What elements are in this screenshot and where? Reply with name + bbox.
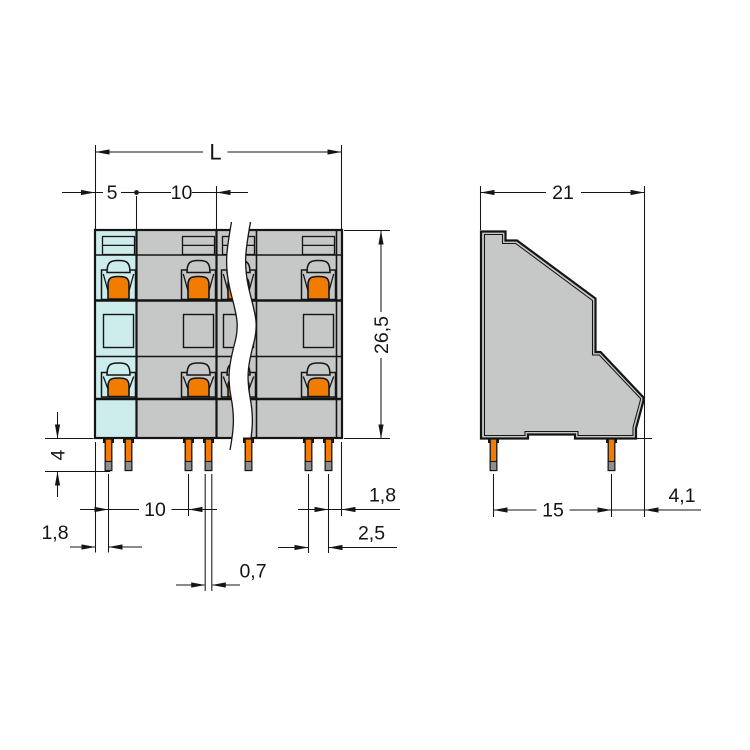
broken-pole-pin bbox=[243, 438, 254, 471]
solder-pin-tip bbox=[245, 462, 252, 471]
dim-overall-length: L bbox=[96, 139, 342, 229]
clamp-dome bbox=[187, 261, 210, 273]
dim-label-edge-to-pole: 5 bbox=[107, 182, 118, 204]
clamp-dome bbox=[307, 363, 330, 375]
arrowhead bbox=[95, 507, 109, 512]
arrowhead bbox=[212, 582, 226, 587]
arrowhead bbox=[645, 507, 659, 512]
arrowhead bbox=[342, 507, 356, 512]
arrowhead bbox=[631, 190, 645, 195]
dim-pin-width: 0,7 bbox=[176, 474, 267, 591]
dim-pin-pitch: 10 bbox=[80, 474, 217, 553]
dim-label-edge-to-first-pin: 1,8 bbox=[41, 522, 68, 544]
dim-label-depth: 21 bbox=[552, 182, 574, 204]
dim-pin-row-spacing: 15 bbox=[494, 474, 612, 522]
solder-pin-tip bbox=[185, 462, 192, 471]
arrowhead bbox=[189, 507, 203, 512]
arrowhead bbox=[82, 544, 96, 549]
dim-label-pole-pitch: 10 bbox=[171, 182, 193, 204]
dim-label-pin-length: 4 bbox=[48, 449, 70, 460]
solder-pin-tip bbox=[105, 462, 112, 471]
arrowhead bbox=[55, 472, 60, 486]
side-profile bbox=[481, 232, 644, 439]
dim-label-pin-to-edge: 4,1 bbox=[668, 485, 695, 507]
arrowhead bbox=[96, 149, 110, 154]
pushbutton bbox=[188, 378, 209, 397]
pushbutton bbox=[308, 378, 329, 397]
solder-pin-tip bbox=[305, 462, 312, 471]
arrowhead bbox=[315, 507, 329, 512]
break-mask bbox=[236, 222, 247, 450]
arrowhead bbox=[481, 190, 495, 195]
pushbutton bbox=[308, 277, 329, 300]
pushbutton bbox=[188, 277, 209, 300]
solder-pin-tip bbox=[205, 462, 212, 471]
dim-height: 26,5 bbox=[344, 231, 393, 439]
arrowhead bbox=[295, 545, 309, 550]
solder-pin-tip bbox=[325, 462, 332, 471]
arrowhead bbox=[81, 190, 95, 195]
dim-edge-and-pitch: 5 10 bbox=[62, 182, 248, 229]
dim-label-pin-pitch: 10 bbox=[144, 499, 166, 521]
arrowhead bbox=[494, 507, 508, 512]
clamp-dome bbox=[107, 363, 130, 375]
clamp-dome bbox=[307, 261, 330, 273]
dim-pin-to-edge: 4,1 bbox=[612, 439, 702, 513]
dim-label-last-pin-to-edge: 1,8 bbox=[369, 485, 396, 507]
arrowhead bbox=[191, 582, 205, 587]
arrowhead bbox=[329, 545, 343, 550]
arrowhead bbox=[378, 231, 383, 245]
dimension-origin-dot bbox=[134, 190, 139, 195]
arrowhead bbox=[55, 425, 60, 439]
arrowhead bbox=[328, 149, 342, 154]
dim-label-length: L bbox=[209, 139, 221, 164]
solder-pin-tip bbox=[490, 462, 497, 471]
dimension-drawing: L 5 10 26,5 bbox=[0, 0, 750, 750]
front-view bbox=[95, 222, 342, 471]
side-view bbox=[481, 232, 644, 471]
solder-pin-tip bbox=[608, 462, 615, 471]
clamp-dome bbox=[107, 261, 130, 273]
dim-label-pin-row-spacing: 15 bbox=[542, 500, 564, 522]
pushbutton bbox=[108, 378, 129, 397]
solder-pin-tip bbox=[125, 462, 132, 471]
arrowhead bbox=[109, 544, 123, 549]
clamp-dome bbox=[187, 363, 210, 375]
dim-last-pin-to-edge: 1,8 bbox=[298, 442, 400, 516]
pushbutton bbox=[108, 277, 129, 300]
arrowhead bbox=[378, 425, 383, 439]
dim-label-pin-pair-spacing: 2,5 bbox=[358, 523, 385, 545]
dim-label-pin-width: 0,7 bbox=[239, 561, 266, 583]
drawing-canvas: L 5 10 26,5 bbox=[0, 0, 750, 750]
arrowhead bbox=[598, 507, 612, 512]
dim-label-height: 26,5 bbox=[371, 316, 393, 354]
arrowhead bbox=[217, 190, 231, 195]
